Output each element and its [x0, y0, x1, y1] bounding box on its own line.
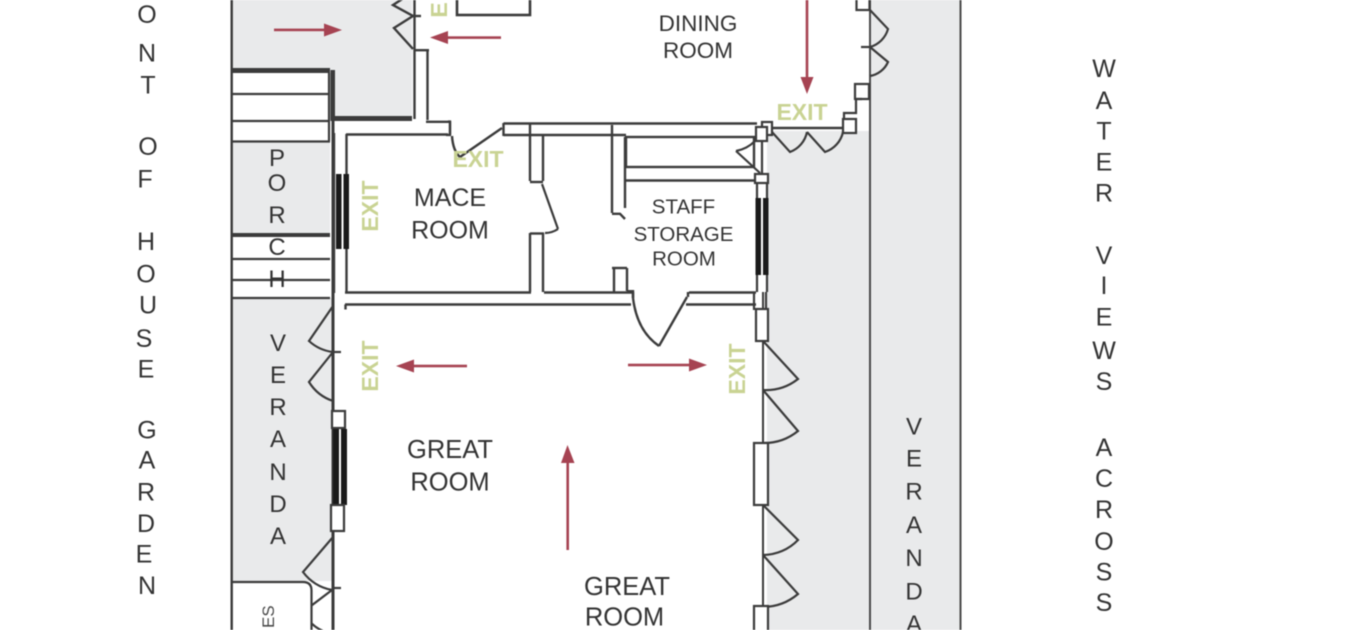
svg-text:ROOM: ROOM: [652, 248, 716, 271]
svg-text:EXIT: EXIT: [357, 340, 383, 391]
svg-text:EXIT: EXIT: [357, 180, 383, 231]
svg-text:T: T: [140, 72, 155, 100]
svg-text:EXIT: EXIT: [776, 99, 827, 125]
svg-text:P: P: [269, 145, 285, 172]
svg-text:D: D: [137, 510, 155, 538]
svg-text:W: W: [1092, 55, 1116, 83]
svg-text:R: R: [137, 479, 155, 507]
svg-text:E: E: [426, 2, 452, 17]
svg-text:A: A: [1096, 434, 1113, 462]
svg-text:H: H: [268, 266, 285, 293]
svg-text:ES: ES: [259, 605, 278, 628]
svg-text:A: A: [270, 523, 286, 550]
svg-text:V: V: [270, 330, 286, 357]
svg-text:A: A: [906, 611, 922, 630]
svg-text:E: E: [138, 356, 155, 384]
svg-text:ROOM: ROOM: [663, 38, 733, 63]
svg-text:N: N: [138, 40, 156, 68]
svg-text:U: U: [139, 292, 157, 320]
svg-text:ROOM: ROOM: [410, 469, 489, 497]
svg-text:N: N: [138, 572, 156, 600]
svg-text:O: O: [138, 133, 157, 161]
svg-text:R: R: [1095, 496, 1113, 524]
svg-text:G: G: [137, 417, 156, 445]
svg-text:A: A: [1096, 87, 1113, 115]
svg-text:C: C: [1095, 465, 1113, 493]
svg-text:R: R: [268, 202, 285, 229]
svg-text:W: W: [1092, 337, 1116, 365]
svg-text:E: E: [1096, 149, 1113, 177]
svg-text:A: A: [270, 426, 286, 453]
svg-text:STAFF: STAFF: [652, 196, 715, 219]
svg-text:D: D: [269, 491, 286, 518]
svg-text:S: S: [136, 325, 153, 353]
svg-text:R: R: [269, 394, 286, 421]
svg-text:E: E: [906, 446, 922, 473]
svg-text:N: N: [269, 459, 286, 486]
svg-text:R: R: [1095, 180, 1113, 208]
svg-text:GREAT: GREAT: [407, 436, 493, 464]
svg-text:O: O: [136, 261, 155, 289]
svg-text:E: E: [136, 541, 153, 569]
svg-text:ROOM: ROOM: [585, 604, 664, 630]
svg-text:EXIT: EXIT: [724, 343, 750, 394]
svg-text:H: H: [137, 228, 155, 256]
svg-text:STORAGE: STORAGE: [634, 223, 734, 246]
svg-text:V: V: [906, 414, 922, 441]
svg-text:F: F: [137, 166, 152, 194]
svg-text:D: D: [905, 579, 922, 606]
svg-text:S: S: [1096, 559, 1113, 587]
svg-text:I: I: [1101, 272, 1108, 300]
svg-text:A: A: [139, 447, 156, 475]
svg-text:S: S: [1096, 368, 1113, 396]
svg-text:N: N: [905, 545, 922, 572]
svg-text:E: E: [270, 362, 286, 389]
svg-text:MACE: MACE: [414, 184, 486, 212]
svg-text:EXIT: EXIT: [452, 146, 503, 172]
svg-text:GREAT: GREAT: [584, 573, 670, 601]
svg-text:O: O: [268, 170, 287, 197]
svg-text:A: A: [906, 512, 922, 539]
svg-text:S: S: [1096, 589, 1113, 617]
svg-text:O: O: [1094, 528, 1113, 556]
svg-text:ROOM: ROOM: [411, 217, 489, 245]
svg-text:O: O: [137, 1, 156, 29]
svg-text:DINING: DINING: [659, 11, 738, 36]
svg-text:T: T: [1096, 118, 1111, 146]
svg-text:C: C: [268, 234, 285, 261]
svg-text:V: V: [1096, 242, 1113, 270]
svg-text:E: E: [1096, 304, 1113, 332]
svg-text:R: R: [905, 479, 922, 506]
